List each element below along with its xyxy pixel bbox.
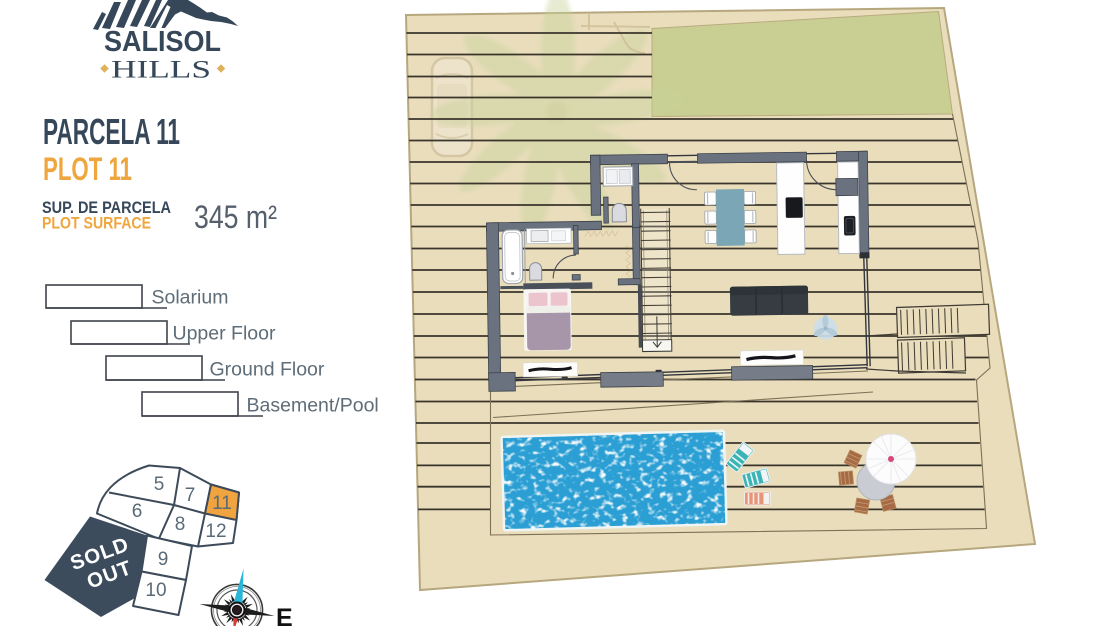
svg-text:Solarium: Solarium — [152, 287, 229, 309]
svg-text:9: 9 — [158, 549, 169, 570]
svg-text:5: 5 — [154, 474, 165, 495]
svg-text:8: 8 — [175, 514, 186, 535]
svg-text:10: 10 — [145, 580, 166, 601]
svg-text:SALISOL: SALISOL — [104, 26, 221, 58]
svg-text:7: 7 — [185, 485, 196, 506]
svg-text:E: E — [276, 604, 293, 626]
svg-text:PLOT 11: PLOT 11 — [43, 151, 132, 187]
svg-text:HILLS: HILLS — [111, 57, 211, 84]
svg-text:PLOT SURFACE: PLOT SURFACE — [42, 214, 151, 232]
svg-text:Basement/Pool: Basement/Pool — [247, 395, 379, 417]
svg-text:12: 12 — [205, 521, 226, 542]
svg-text:345 m²: 345 m² — [194, 199, 277, 235]
svg-text:Upper Floor: Upper Floor — [173, 323, 276, 345]
svg-text:11: 11 — [212, 493, 232, 514]
svg-text:Ground Floor: Ground Floor — [210, 359, 325, 381]
svg-text:6: 6 — [132, 501, 143, 522]
svg-text:PARCELA 11: PARCELA 11 — [43, 111, 180, 152]
